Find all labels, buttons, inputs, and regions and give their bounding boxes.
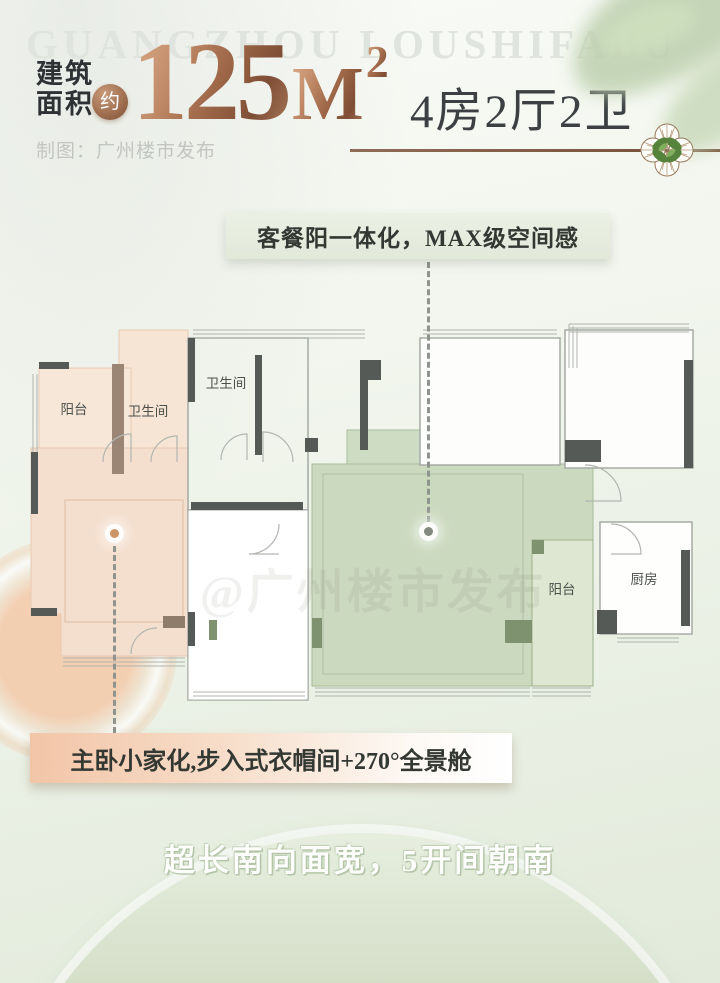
credit-text: 制图：广州楼市发布 (36, 136, 216, 163)
room-label-bath-middle: 卫生间 (196, 372, 256, 392)
area-label-line2: 面积 (36, 90, 94, 120)
approx-badge: 约 (92, 84, 128, 120)
leader-line-living (427, 262, 430, 522)
leader-line-master (113, 546, 116, 733)
area-digits: 125 (132, 26, 288, 138)
area-unit: M (292, 56, 364, 132)
room-label-kitchen: 厨房 (614, 568, 674, 588)
leader-dot-living (424, 527, 433, 536)
callout-master-bedroom: 主卧小家化,步入式衣帽间+270°全景舱 (30, 733, 512, 783)
plan-watermark-text: @广州楼市发布 (200, 553, 530, 622)
callout-living-text: 客餐阳一体化，MAX级空间感 (257, 219, 579, 253)
leader-dot-master (110, 529, 119, 538)
area-superscript: 2 (366, 35, 389, 88)
room-label-balcony-master: 阳台 (49, 398, 99, 418)
area-value: 125 M 2 (132, 26, 389, 138)
area-label-line1: 建筑 (36, 60, 94, 90)
area-label: 建筑 面积 (36, 60, 94, 119)
master-zone-shape (31, 330, 188, 656)
floorplan-svg (25, 312, 705, 712)
callout-master-text: 主卧小家化,步入式衣帽间+270°全景舱 (70, 741, 471, 776)
clover-flower-icon (638, 121, 696, 179)
poster-page: GUANGZHOU LOUSHIFABU 建筑 面积 约 125 M 2 4房2… (0, 0, 720, 983)
callout-living-dining: 客餐阳一体化，MAX级空间感 (226, 213, 610, 259)
room-label-bath-master: 卫生间 (118, 400, 178, 420)
footer-slogan: 超长南向面宽，5开间朝南 (0, 835, 720, 880)
